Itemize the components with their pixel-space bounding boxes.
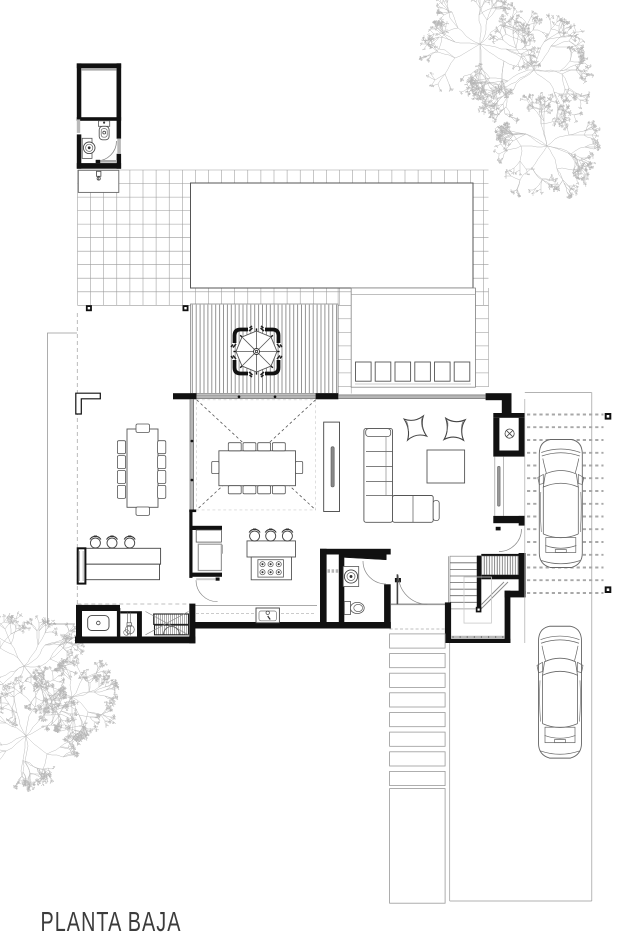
- svg-text:PLANTA BAJA: PLANTA BAJA: [41, 906, 182, 937]
